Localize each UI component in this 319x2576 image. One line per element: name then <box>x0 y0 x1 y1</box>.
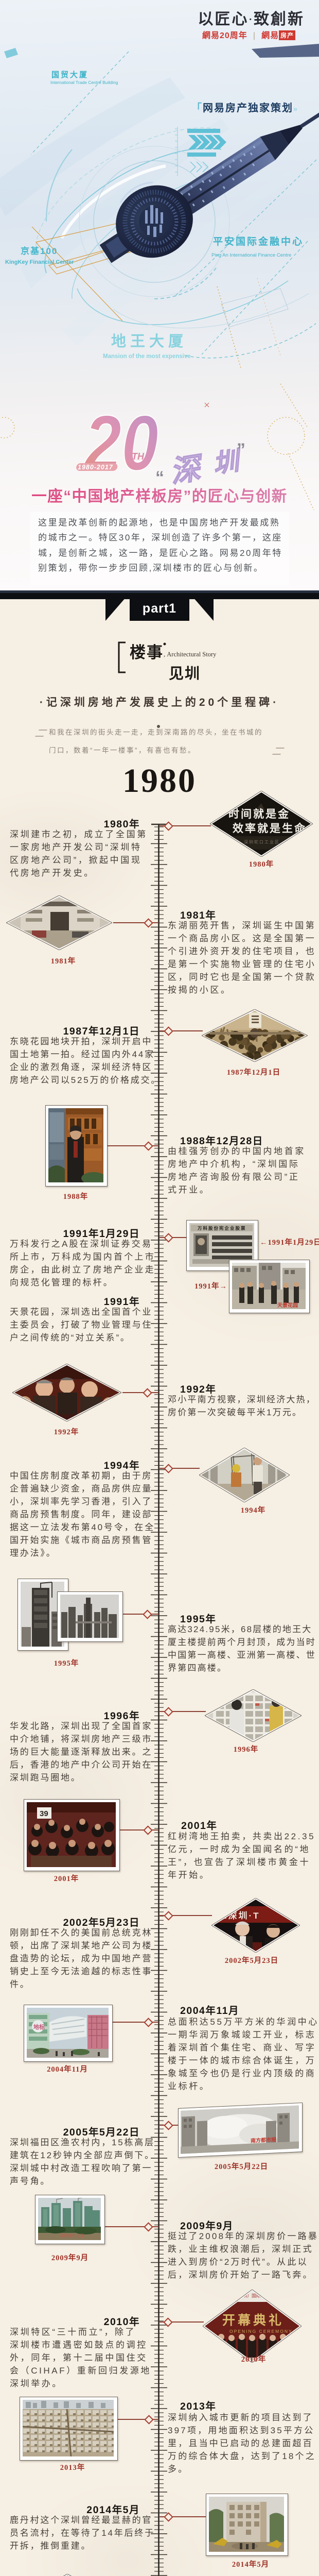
svg-text:OPENING CEREMONY: OPENING CEREMONY <box>229 2329 293 2334</box>
svg-text:KingKey Financial Center: KingKey Financial Center <box>5 259 74 265</box>
svg-text:天景花园: 天景花园 <box>277 1302 298 1309</box>
svg-text:楼事: 楼事 <box>130 643 164 662</box>
svg-text:Mansion of the most expensive: Mansion of the most expensive <box>103 353 191 360</box>
svg-text:地王大厦: 地王大厦 <box>111 333 187 350</box>
svg-text:国贸大厦: 国贸大厦 <box>51 70 88 79</box>
svg-text:深圳蛇口工业区: 深圳蛇口工业区 <box>244 839 280 844</box>
svg-text:万科股份宪企业股票: 万科股份宪企业股票 <box>197 1226 246 1231</box>
svg-text:中国（深圳）国际房地产峰会: 中国（深圳）国际房地产峰会 <box>225 2293 282 2298</box>
svg-text:39: 39 <box>40 1809 48 1818</box>
svg-text:深: 深 <box>168 451 206 488</box>
svg-text:平安国际金融中心: 平安国际金融中心 <box>213 235 304 247</box>
svg-text:开幕典礼: 开幕典礼 <box>222 2313 284 2328</box>
svg-text:效率就是生命: 效率就是生命 <box>233 822 307 835</box>
svg-text:Ping An International Finance: Ping An International Finance Centre <box>211 252 291 258</box>
svg-text:京基100: 京基100 <box>21 246 58 256</box>
svg-text:1980-2017: 1980-2017 <box>78 464 113 471</box>
svg-text:”: ” <box>237 440 245 460</box>
svg-text:时间就是金: 时间就是金 <box>228 808 290 820</box>
svg-text:, Architectural Story: , Architectural Story <box>164 651 217 658</box>
svg-text:地标: 地标 <box>33 2023 45 2030</box>
svg-text:见圳: 见圳 <box>169 665 201 682</box>
svg-text:深圳房价上涨: 深圳房价上涨 <box>60 2233 84 2238</box>
svg-text:TH: TH <box>132 451 145 462</box>
svg-text:International Trade Centre Bui: International Trade Centre Building <box>50 80 118 85</box>
